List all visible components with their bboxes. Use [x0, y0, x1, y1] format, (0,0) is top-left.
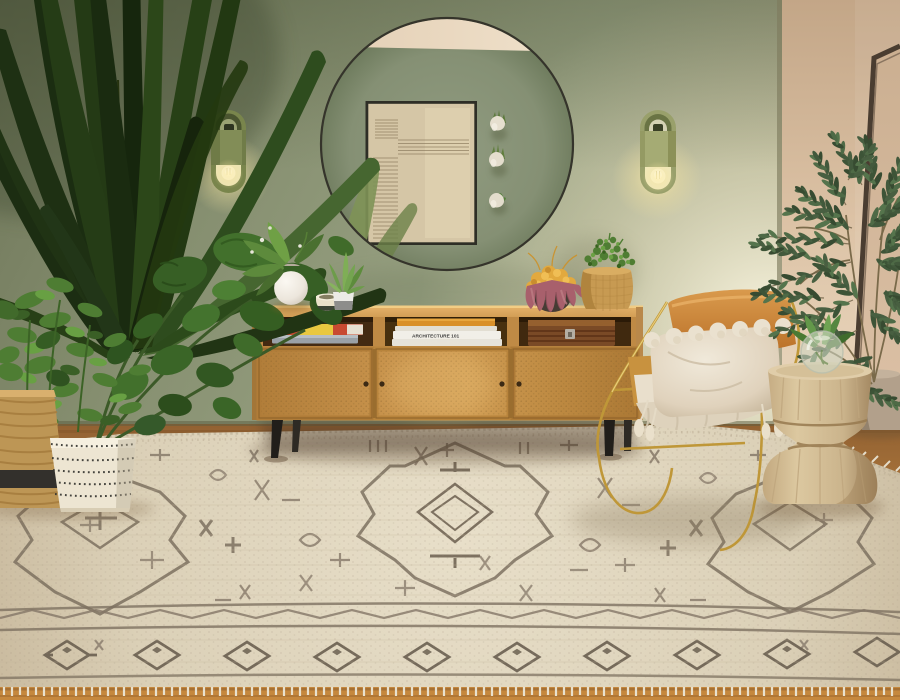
- svg-text:ARCHITECTURE 101: ARCHITECTURE 101: [412, 334, 460, 340]
